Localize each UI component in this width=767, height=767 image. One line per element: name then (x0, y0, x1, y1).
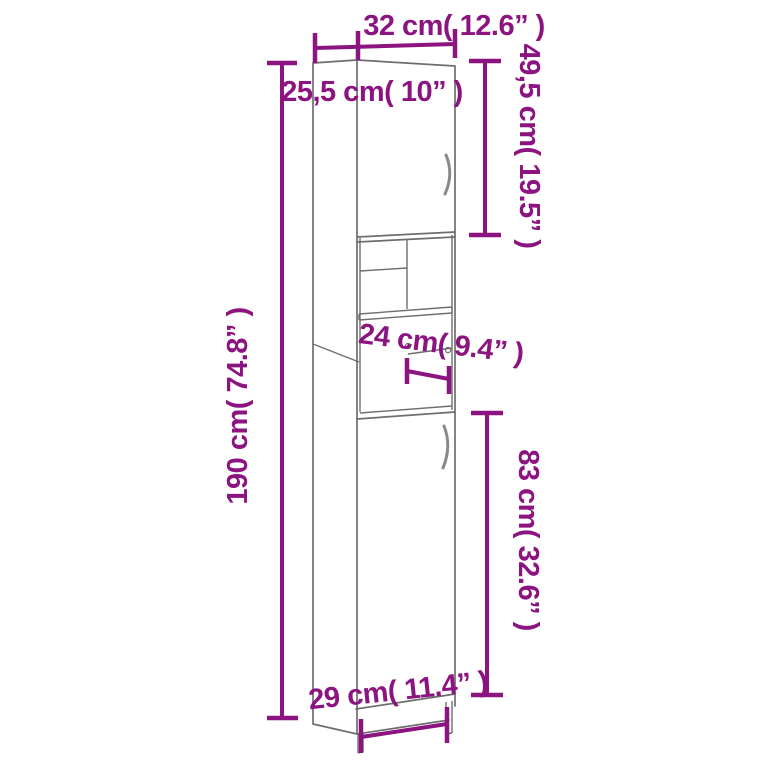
compartment-back-line (360, 268, 407, 271)
shelf-depth-dimension-line (407, 371, 449, 379)
diagram-canvas: 32 cm( 12.6” ) 25,5 cm( 10” ) 190 cm( 74… (0, 0, 767, 767)
cabinet-drawing (313, 60, 455, 753)
bottom-door-top-edge (357, 412, 455, 419)
bottom-door-handle-icon (443, 426, 448, 468)
dimension-base-width: 29 cm( 11.4” ) (307, 666, 489, 753)
dimension-top-door-height: 49,5 cm( 19.5” ) (469, 44, 545, 249)
dimension-total-height: 190 cm( 74.8” ) (222, 63, 298, 718)
top-dimension-line (315, 44, 455, 48)
compartment-bottom (360, 406, 452, 413)
dim-label-shelf-depth: 24 cm( 9.4” ) (357, 318, 526, 370)
dimension-annotations: 32 cm( 12.6” ) 25,5 cm( 10” ) 190 cm( 74… (222, 10, 545, 753)
dim-label-base-width: 29 cm( 11.4” ) (307, 666, 489, 717)
dimension-shelf-depth: 24 cm( 9.4” ) (357, 318, 526, 394)
cabinet-outline (313, 60, 455, 734)
dim-label-width-top: 32 cm( 12.6” ) (363, 10, 545, 42)
dim-label-top-door-height: 49,5 cm( 19.5” ) (513, 44, 545, 249)
dim-label-depth-top: 25,5 cm( 10” ) (281, 76, 463, 108)
dimension-top-width: 32 cm( 12.6” ) 25,5 cm( 10” ) (281, 10, 545, 108)
dimension-bottom-door-height: 83 cm( 32.6” ) (471, 413, 544, 695)
dim-label-total-height: 190 cm( 74.8” ) (222, 307, 254, 504)
top-door-handle-icon (445, 155, 450, 194)
dimension-diagram: 32 cm( 12.6” ) 25,5 cm( 10” ) 190 cm( 74… (0, 0, 767, 767)
base-width-dimension-line (361, 724, 447, 737)
dim-label-bottom-door-height: 83 cm( 32.6” ) (512, 449, 544, 631)
shelf (359, 307, 452, 320)
top-door-bottom-edge (357, 232, 455, 242)
side-panel-seam (313, 344, 359, 362)
